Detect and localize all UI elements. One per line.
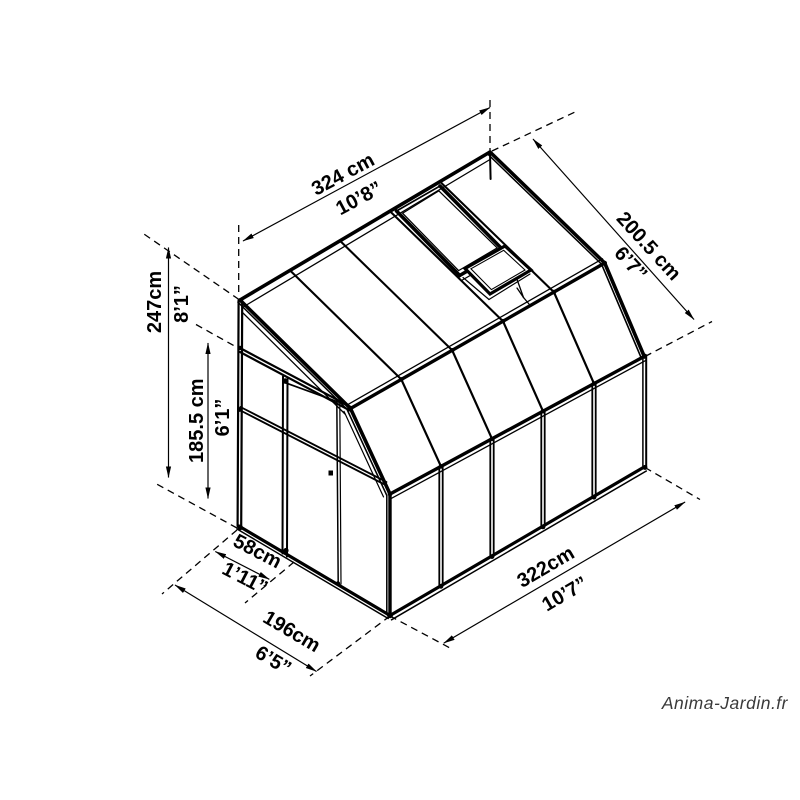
svg-text:Anima-Jardin.fr: Anima-Jardin.fr	[661, 693, 789, 713]
svg-text:185.5 cm: 185.5 cm	[186, 378, 208, 463]
svg-text:247cm: 247cm	[144, 271, 166, 333]
svg-text:8’1”: 8’1”	[171, 285, 193, 323]
svg-text:6’1”: 6’1”	[212, 399, 234, 437]
